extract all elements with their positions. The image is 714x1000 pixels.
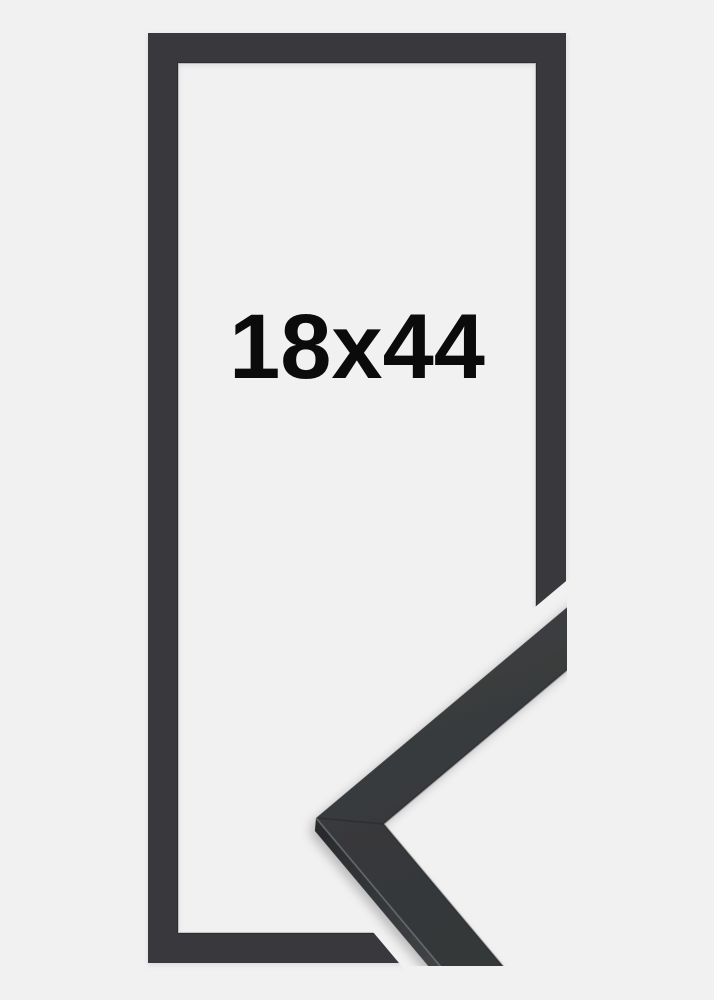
product-image-canvas [0, 0, 714, 1000]
product-image: 18x44 [0, 0, 714, 1000]
size-label: 18x44 [148, 301, 566, 393]
